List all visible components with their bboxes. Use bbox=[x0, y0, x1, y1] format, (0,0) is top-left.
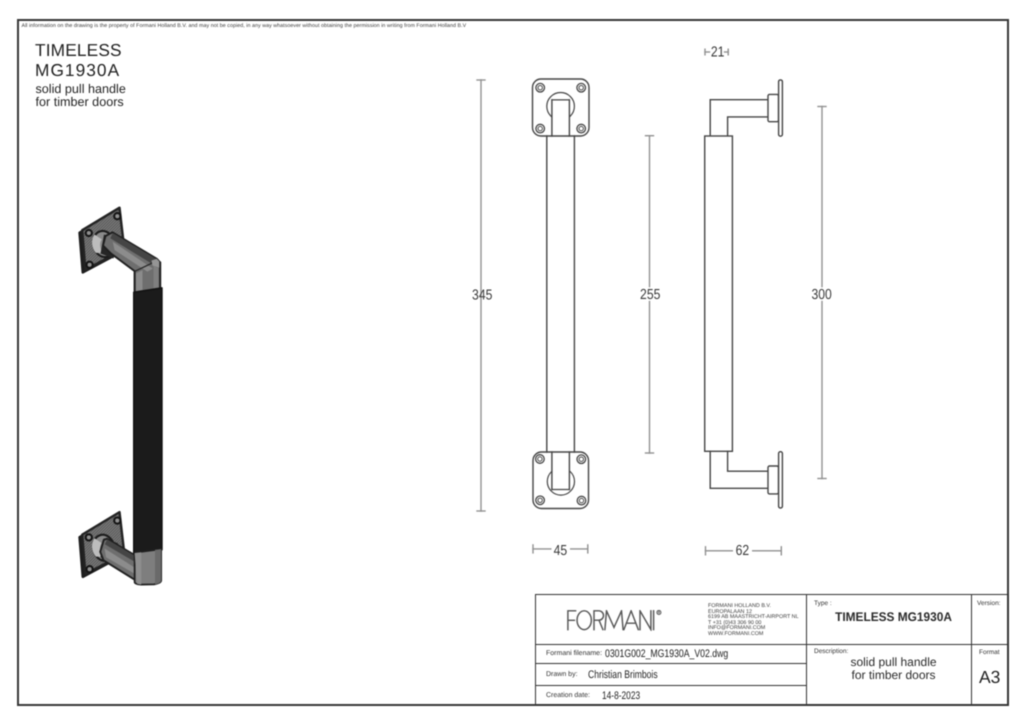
svg-text:21: 21 bbox=[711, 45, 725, 61]
svg-text:62: 62 bbox=[736, 543, 750, 559]
svg-text:45: 45 bbox=[554, 543, 568, 559]
svg-text:345: 345 bbox=[472, 287, 492, 303]
svg-text:300: 300 bbox=[811, 287, 831, 303]
svg-text:255: 255 bbox=[640, 287, 660, 303]
